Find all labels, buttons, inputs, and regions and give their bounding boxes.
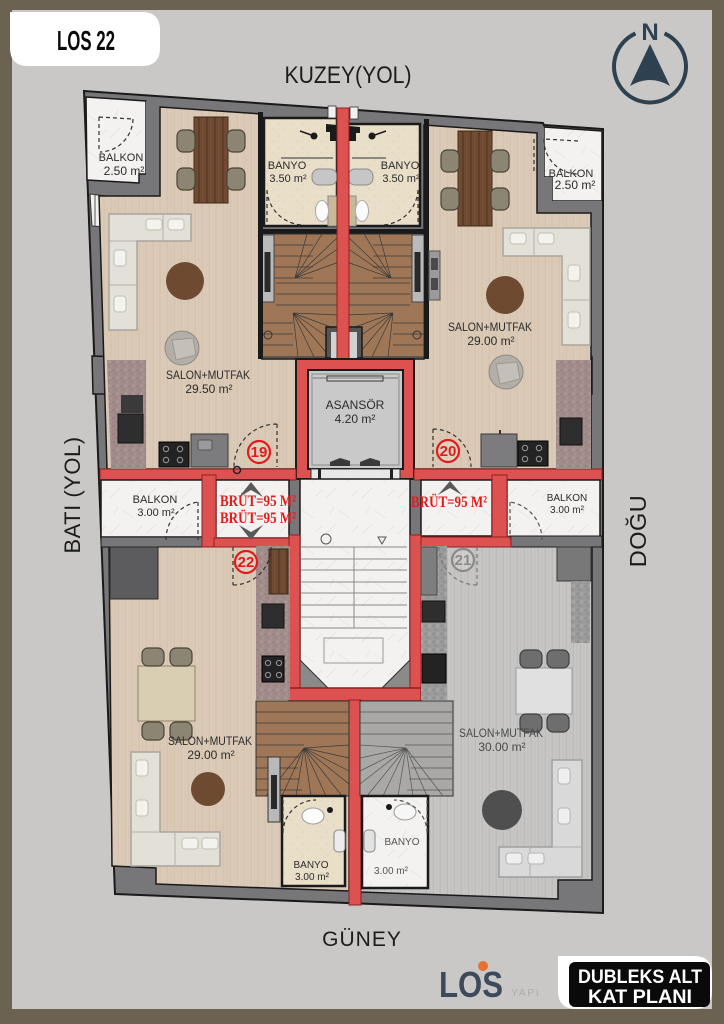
- svg-text:19: 19: [251, 444, 268, 461]
- svg-text:BRÜT=95 M²: BRÜT=95 M²: [411, 493, 487, 511]
- svg-text:BATI (YOL): BATI (YOL): [60, 436, 85, 553]
- svg-text:GÜNEY: GÜNEY: [322, 928, 402, 951]
- svg-text:3.00 m²: 3.00 m²: [137, 507, 175, 519]
- svg-text:SALON+MUTFAK: SALON+MUTFAK: [166, 368, 250, 382]
- svg-text:2.50 m²: 2.50 m²: [555, 178, 596, 192]
- svg-text:21: 21: [455, 552, 472, 569]
- svg-text:YAPI: YAPI: [511, 987, 540, 999]
- svg-text:3.00 m²: 3.00 m²: [550, 505, 585, 516]
- svg-text:3.00 m²: 3.00 m²: [295, 872, 330, 883]
- svg-text:3.50 m²: 3.50 m²: [382, 173, 420, 185]
- svg-text:BANYO: BANYO: [293, 860, 328, 871]
- svg-text:BALKON: BALKON: [133, 494, 178, 506]
- svg-text:3.00 m²: 3.00 m²: [374, 866, 409, 877]
- svg-text:BANYO: BANYO: [268, 160, 307, 172]
- svg-text:29.50 m²: 29.50 m²: [185, 382, 232, 396]
- svg-text:29.00 m²: 29.00 m²: [187, 748, 234, 762]
- svg-text:2.50 m²: 2.50 m²: [104, 164, 145, 178]
- svg-text:29.00 m²: 29.00 m²: [467, 334, 514, 348]
- svg-text:KUZEY(YOL): KUZEY(YOL): [285, 62, 412, 89]
- svg-text:22: 22: [238, 554, 255, 571]
- svg-text:N: N: [641, 19, 658, 46]
- svg-text:30.00 m²: 30.00 m²: [478, 740, 525, 754]
- svg-text:SALON+MUTFAK: SALON+MUTFAK: [459, 726, 543, 740]
- svg-text:20: 20: [440, 443, 457, 460]
- svg-text:KAT PLANI: KAT PLANI: [588, 987, 692, 1008]
- svg-text:LOS 22: LOS 22: [57, 25, 115, 56]
- svg-text:BRÜT=95 M²: BRÜT=95 M²: [220, 492, 296, 510]
- svg-text:LOS: LOS: [439, 964, 503, 1005]
- svg-text:BALKON: BALKON: [547, 493, 588, 504]
- svg-text:SALON+MUTFAK: SALON+MUTFAK: [448, 320, 532, 334]
- svg-text:BANYO: BANYO: [381, 160, 420, 172]
- svg-text:DOĞU: DOĞU: [625, 495, 651, 568]
- svg-text:ASANSÖR: ASANSÖR: [326, 398, 385, 412]
- svg-text:4.20 m²: 4.20 m²: [335, 412, 376, 426]
- svg-text:DUBLEKS ALT: DUBLEKS ALT: [578, 967, 702, 988]
- svg-text:SALON+MUTFAK: SALON+MUTFAK: [168, 734, 252, 748]
- svg-text:BRÜT=95 M²: BRÜT=95 M²: [220, 509, 296, 527]
- svg-text:BANYO: BANYO: [384, 837, 419, 848]
- svg-text:BALKON: BALKON: [99, 152, 144, 164]
- svg-text:3.50 m²: 3.50 m²: [269, 173, 307, 185]
